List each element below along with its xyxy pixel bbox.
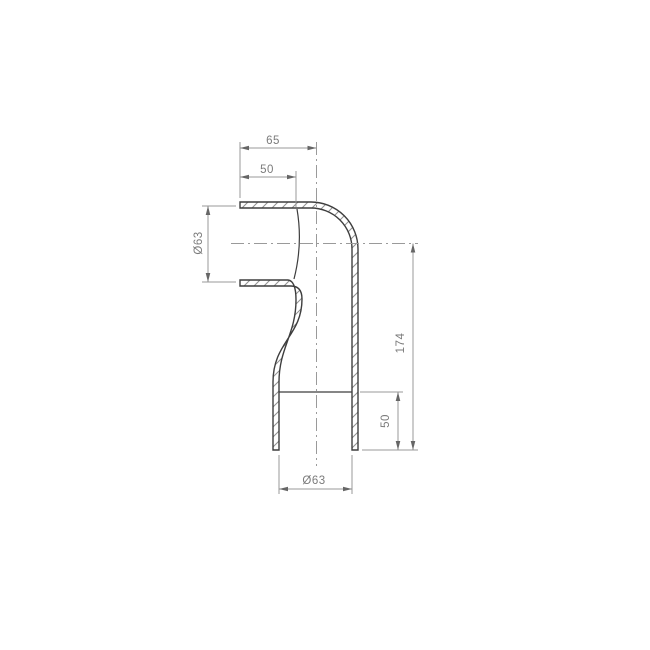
technical-drawing-pipe-offset-bend: 65 50 Ø63 174 <box>0 0 650 650</box>
drawing-canvas: 65 50 Ø63 174 <box>0 0 650 650</box>
dimension-arrow <box>396 441 401 450</box>
dimension-arrow <box>411 244 416 253</box>
dimension-arrow <box>308 146 317 151</box>
dimension-arrow <box>279 487 288 492</box>
dimension-outlet-diameter: Ø63 <box>279 455 352 494</box>
dimension-label-outlet-diameter: Ø63 <box>302 475 325 487</box>
dimension-arrow <box>411 441 416 450</box>
dimension-top-socket-depth: 50 <box>240 164 296 207</box>
dimension-arrow <box>240 175 249 180</box>
dimension-bottom-socket-depth: 50 <box>360 392 403 450</box>
dimension-label-inlet-diameter: Ø63 <box>193 231 205 254</box>
dimension-arrow <box>396 392 401 401</box>
dimension-arrow <box>343 487 352 492</box>
dimension-arrow <box>240 146 249 151</box>
dimension-label-top-width: 65 <box>266 135 280 147</box>
dimension-label-top-socket-depth: 50 <box>260 164 274 176</box>
pipe-fitting-section <box>240 202 358 450</box>
dimension-arrow <box>206 273 211 282</box>
dimension-arrow <box>206 206 211 215</box>
dimension-label-overall-height: 174 <box>395 333 407 354</box>
dimension-top-width: 65 <box>240 135 317 198</box>
dimension-arrow <box>287 175 296 180</box>
dimension-inlet-diameter: Ø63 <box>193 206 236 282</box>
dimension-label-bottom-socket-depth: 50 <box>380 414 392 428</box>
pipe-wall-inner-band <box>240 280 302 450</box>
